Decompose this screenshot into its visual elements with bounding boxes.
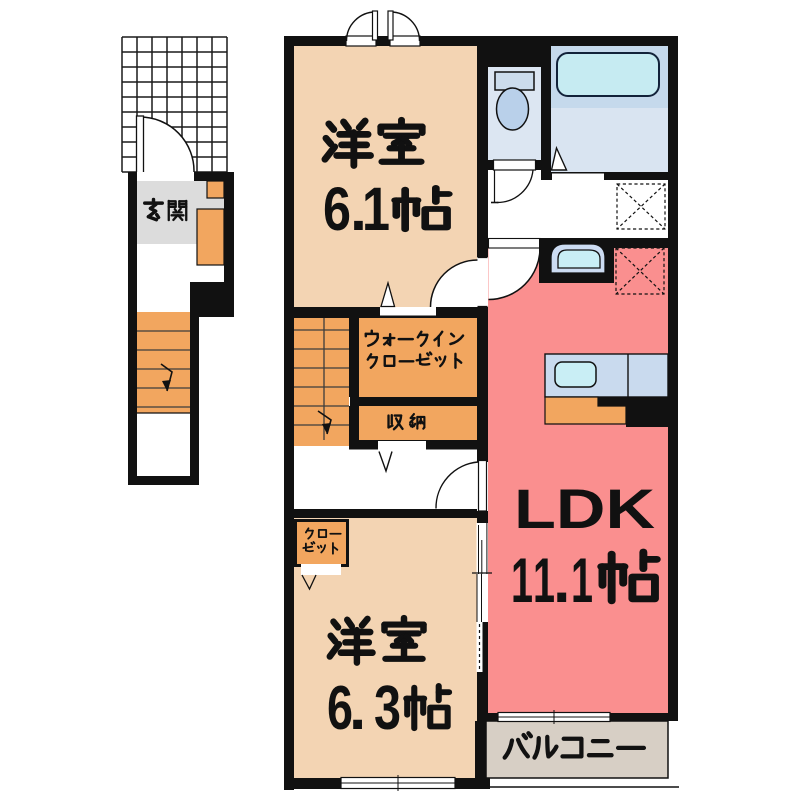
svg-text:1: 1 [362,175,390,243]
svg-text:LDK: LDK [514,477,655,540]
svg-text:.: . [553,546,571,616]
svg-text:1: 1 [571,546,593,616]
svg-text:1: 1 [533,546,555,616]
svg-text:.: . [349,674,366,743]
svg-text:1: 1 [511,546,533,616]
svg-text:6: 6 [323,175,351,243]
svg-text:3: 3 [374,674,401,743]
